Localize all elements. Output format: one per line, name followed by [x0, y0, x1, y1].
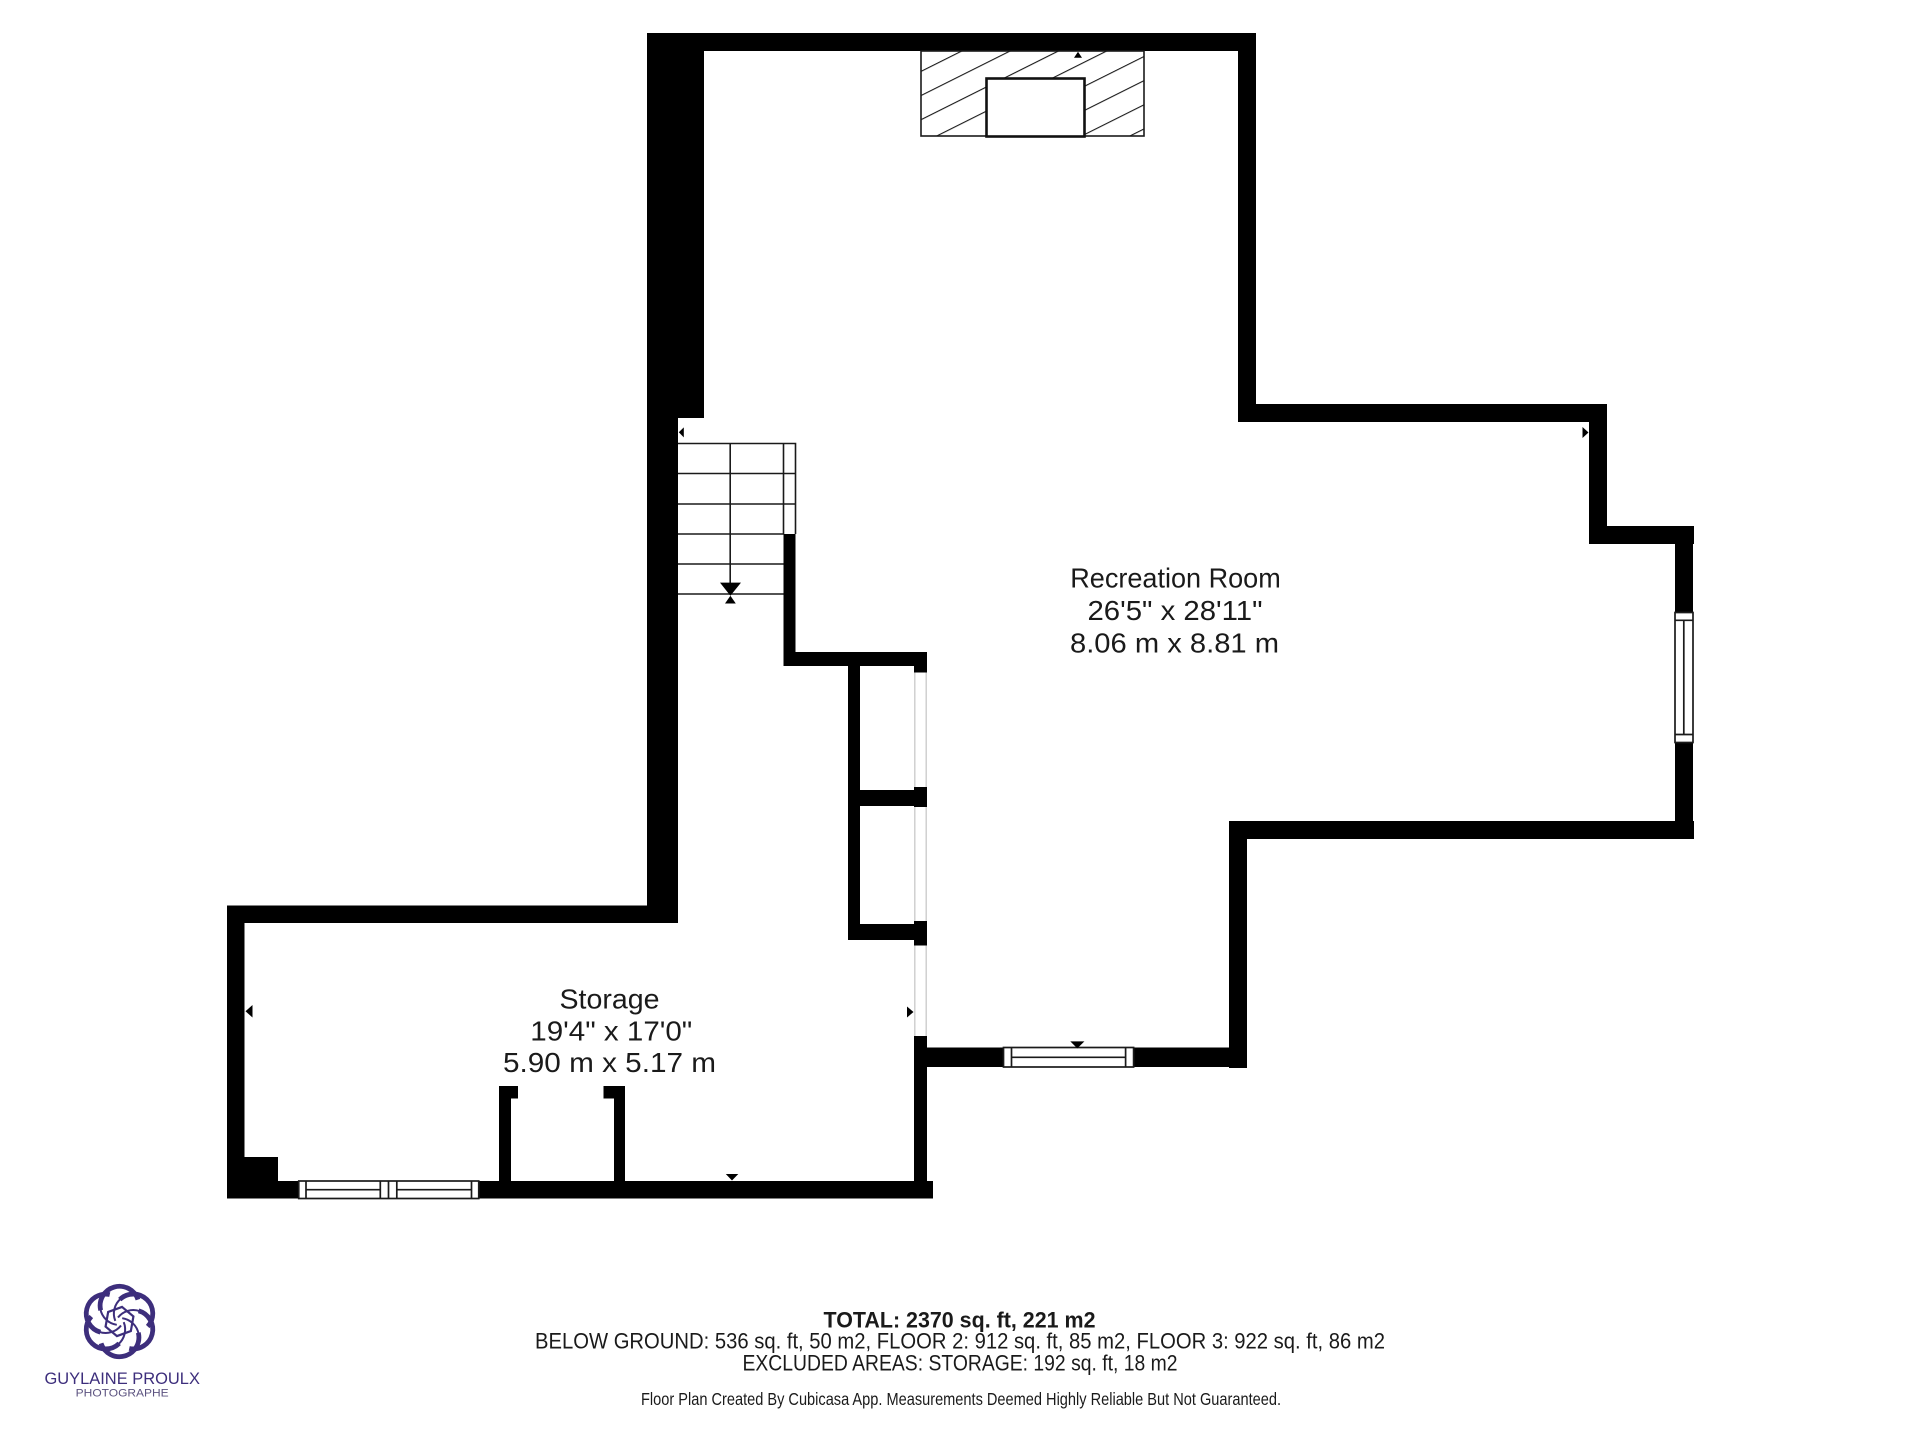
svg-text:Floor Plan Created By Cubicasa: Floor Plan Created By Cubicasa App. Meas…: [641, 1389, 1281, 1409]
svg-text:GUYLAINE PROULX: GUYLAINE PROULX: [44, 1370, 200, 1388]
svg-text:Storage: Storage: [560, 983, 660, 1014]
svg-text:8.06 m x 8.81 m: 8.06 m x 8.81 m: [1070, 628, 1279, 659]
svg-text:26'5" x 28'11": 26'5" x 28'11": [1088, 595, 1263, 626]
svg-text:5.90 m x 5.17 m: 5.90 m x 5.17 m: [503, 1047, 716, 1078]
svg-text:EXCLUDED AREAS: STORAGE: 192 s: EXCLUDED AREAS: STORAGE: 192 sq. ft, 18 …: [743, 1351, 1178, 1376]
svg-text:Recreation Room: Recreation Room: [1070, 563, 1281, 594]
svg-text:19'4" x 17'0": 19'4" x 17'0": [530, 1016, 692, 1047]
svg-text:PHOTOGRAPHE: PHOTOGRAPHE: [76, 1388, 169, 1400]
